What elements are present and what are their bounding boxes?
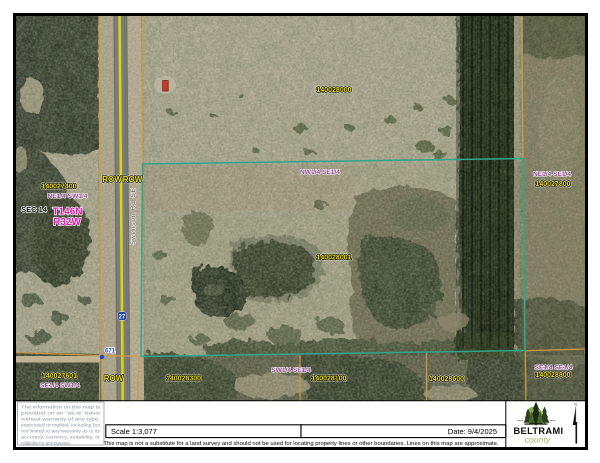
svg-text:NE1/4 SW1/4: NE1/4 SW1/4	[48, 193, 88, 200]
svg-text:T146N: T146N	[52, 207, 82, 218]
svg-text:Swenson Rd SE: Swenson Rd SE	[130, 187, 137, 245]
svg-text:Date: 9/4/2025: Date: 9/4/2025	[448, 427, 497, 436]
svg-text:SEC 14: SEC 14	[21, 205, 48, 214]
svg-text:Scale 1:3,077: Scale 1:3,077	[111, 427, 157, 436]
svg-text:NE1/4 SE1/4: NE1/4 SE1/4	[533, 171, 571, 178]
svg-text:R32W: R32W	[53, 217, 81, 228]
svg-text:27: 27	[119, 314, 126, 320]
svg-text:NW1/4 SE1/4: NW1/4 SE1/4	[300, 169, 340, 176]
svg-text:This map is not a substitute f: This map is not a substitute for a land …	[103, 441, 499, 447]
svg-text:expressed or implied, includin: expressed or implied, including but	[21, 423, 101, 428]
svg-text:county: county	[525, 434, 551, 444]
svg-text:provided on an "as-is" basis: provided on an "as-is" basis	[21, 411, 101, 416]
svg-text:N: N	[574, 403, 577, 407]
svg-text:SE1/4 SE1/4: SE1/4 SE1/4	[535, 364, 573, 371]
svg-text:SW1/4 SE1/4: SW1/4 SE1/4	[271, 367, 311, 374]
svg-text:671: 671	[105, 349, 116, 355]
svg-text:reliability for any purpose.: reliability for any purpose.	[21, 441, 71, 446]
svg-text:The information on this map is: The information on this map is	[21, 405, 101, 410]
svg-text:accuracy, currency, suitabilit: accuracy, currency, suitability, or	[21, 435, 101, 440]
svg-text:SE1/4 SW1/4: SE1/4 SW1/4	[40, 383, 80, 390]
svg-text:not limited to any warranty as: not limited to any warranty as to its	[21, 429, 101, 434]
svg-text:without warranty of any type,: without warranty of any type,	[21, 417, 100, 422]
